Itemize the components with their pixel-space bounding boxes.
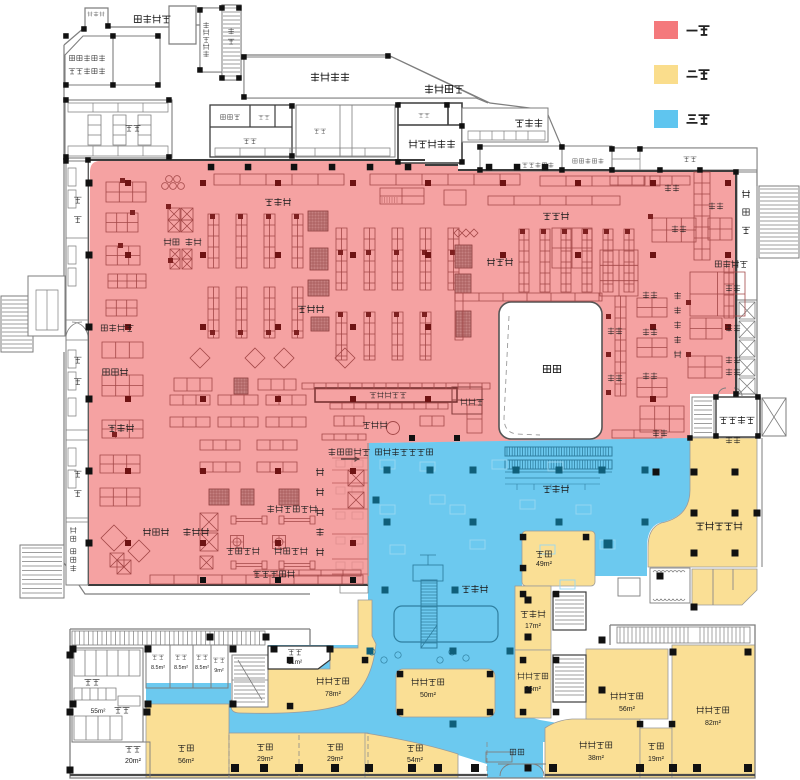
svg-text:9m²: 9m² [214, 668, 224, 674]
svg-text:54m²: 54m² [407, 757, 424, 764]
svg-text:78m²: 78m² [325, 691, 342, 698]
svg-text:38m²: 38m² [588, 755, 605, 762]
svg-text:26m²: 26m² [525, 686, 542, 693]
svg-text:19m²: 19m² [648, 756, 665, 763]
svg-text:50m²: 50m² [420, 692, 437, 699]
svg-text:56m²: 56m² [178, 758, 195, 765]
svg-text:11m²: 11m² [288, 659, 303, 666]
svg-text:29m²: 29m² [257, 756, 274, 763]
svg-text:56m²: 56m² [619, 706, 636, 713]
svg-text:49m²: 49m² [536, 561, 553, 568]
svg-text:8.5m²: 8.5m² [151, 665, 165, 671]
svg-text:8.5m²: 8.5m² [195, 665, 209, 671]
svg-text:29m²: 29m² [327, 756, 344, 763]
svg-text:17m²: 17m² [525, 623, 542, 630]
svg-text:8.5m²: 8.5m² [174, 665, 188, 671]
svg-text:20m²: 20m² [125, 758, 142, 765]
svg-text:82m²: 82m² [705, 720, 722, 727]
svg-text:55m²: 55m² [91, 708, 107, 715]
